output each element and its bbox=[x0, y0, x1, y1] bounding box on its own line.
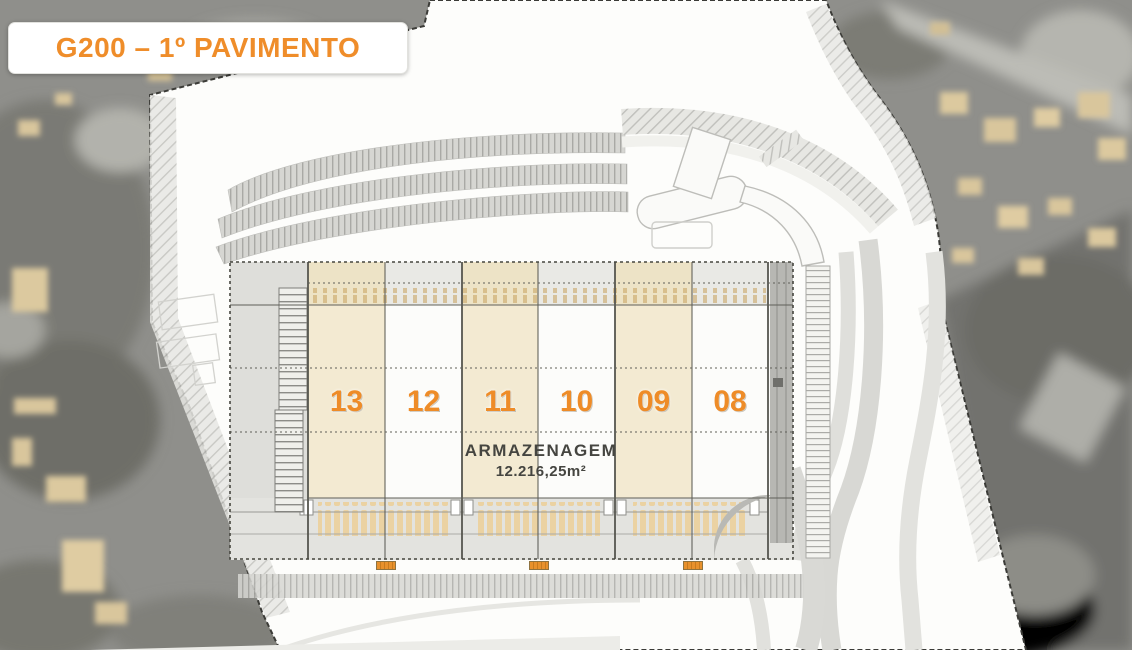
module-label-10: 10 bbox=[538, 384, 615, 420]
dock-marker-1 bbox=[376, 561, 396, 570]
module-label-09: 09 bbox=[615, 384, 692, 420]
storage-area-label: ARMAZENAGEM bbox=[436, 441, 646, 461]
plan-title: G200 – 1º PAVIMENTO bbox=[56, 32, 361, 64]
text-overlay: G200 – 1º PAVIMENTO 13 12 11 10 09 08 AR… bbox=[0, 0, 1132, 650]
plan-title-box: G200 – 1º PAVIMENTO bbox=[8, 22, 408, 74]
module-label-12: 12 bbox=[385, 384, 462, 420]
module-label-08: 08 bbox=[692, 384, 768, 420]
dock-marker-2 bbox=[529, 561, 549, 570]
dock-marker-3 bbox=[683, 561, 703, 570]
floorplan-screenshot: G200 – 1º PAVIMENTO 13 12 11 10 09 08 AR… bbox=[0, 0, 1132, 650]
storage-area-annotation: ARMAZENAGEM 12.216,25m² bbox=[436, 441, 646, 480]
module-label-13: 13 bbox=[308, 384, 385, 420]
module-label-11: 11 bbox=[462, 384, 538, 420]
storage-area-value: 12.216,25m² bbox=[436, 463, 646, 480]
